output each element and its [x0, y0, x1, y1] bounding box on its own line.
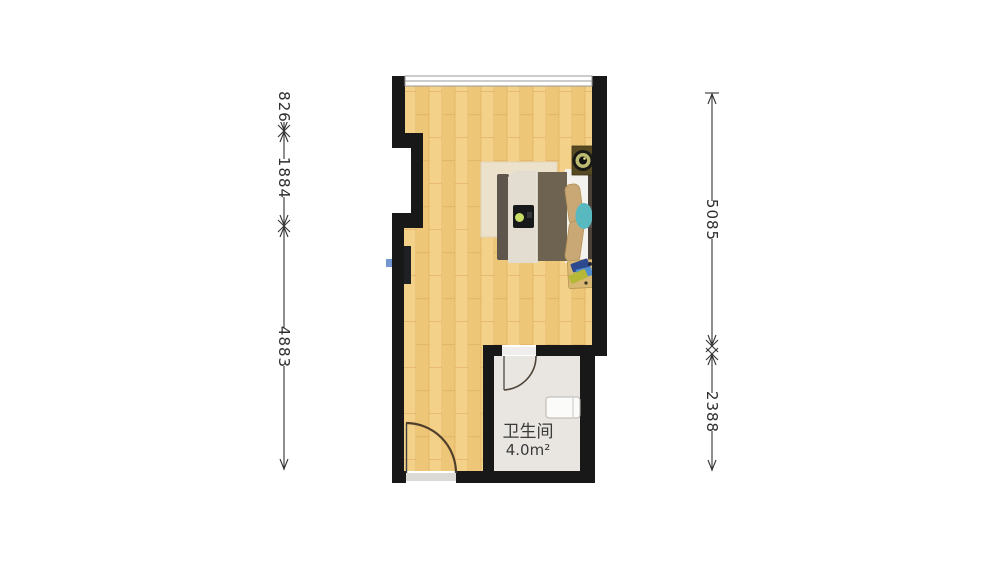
wall-bathroom-top-left-stub — [483, 345, 502, 356]
wall-bathroom-left — [483, 356, 494, 471]
entry-threshold — [406, 473, 456, 481]
dim-left-1884: 1884 — [275, 157, 293, 199]
window-icon — [405, 76, 592, 86]
bathroom-door-opening — [502, 347, 536, 355]
blanket-fold-line — [537, 172, 539, 261]
nightstand-lamp-icon — [572, 146, 594, 175]
teal-throw-icon — [576, 203, 593, 229]
wall-bottom-left-corner — [392, 471, 406, 483]
wall-recess-vertical — [411, 148, 423, 213]
bedside-table-icon — [567, 258, 594, 288]
wall-right-step — [578, 345, 607, 356]
floor-plan-svg: 卫生间 4.0m² 826 1884 4883 — [0, 0, 1000, 563]
bathroom-label: 卫生间 — [503, 422, 554, 442]
bed-foot-rail — [497, 174, 509, 260]
wall-left — [392, 228, 404, 473]
bed-blanket-brown — [537, 172, 567, 261]
wall-top-left-post — [392, 76, 405, 133]
double-bed-icon — [497, 169, 593, 263]
floor-plan: 卫生间 4.0m² 826 1884 4883 — [0, 0, 1000, 563]
washbasin-icon — [546, 397, 580, 418]
wall-bathroom-top — [536, 345, 578, 356]
dim-left-4883: 4883 — [275, 326, 293, 368]
wall-recess-top-bar — [392, 133, 423, 148]
dim-right-2388: 2388 — [703, 391, 721, 433]
wall-bathroom-right — [580, 356, 595, 483]
bathroom-area: 4.0m² — [506, 441, 550, 459]
laptop-tray-icon — [513, 205, 534, 228]
dim-left-826: 826 — [275, 91, 293, 123]
wall-bottom — [456, 471, 595, 483]
dim-right-5085: 5085 — [703, 199, 721, 241]
wall-recess-bottom-bar — [392, 213, 423, 228]
wall-right — [592, 76, 607, 356]
dimension-chain-left — [277, 93, 291, 470]
